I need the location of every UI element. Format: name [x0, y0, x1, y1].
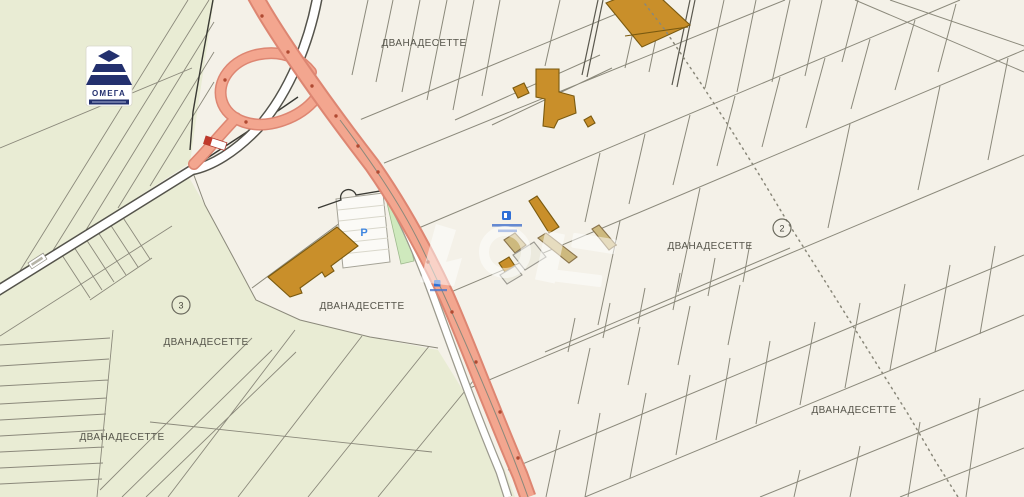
parcel-number: 3: [178, 301, 183, 311]
poi-glyph: [504, 213, 507, 218]
parcel-number: 2: [779, 224, 784, 234]
logo-title: ОМЕГА: [92, 89, 126, 98]
region-label: ДВАНАДЕСЕТТЕ: [667, 241, 752, 252]
parking-icon: P: [360, 227, 367, 239]
region-label: ДВАНАДЕСЕТТЕ: [79, 432, 164, 443]
poi-label-line: [430, 289, 447, 291]
map-viewport[interactable]: 3 2 P ДВАНАДЕСЕТТЕ ДВАНАДЕСЕТТЕ ДВАНАДЕС…: [0, 0, 1024, 497]
cadastral-map[interactable]: 3 2 P ДВАНАДЕСЕТТЕ ДВАНАДЕСЕТТЕ ДВАНАДЕС…: [0, 0, 1024, 497]
logo-bar-line: [92, 102, 126, 103]
region-label: ДВАНАДЕСЕТТЕ: [381, 38, 466, 49]
region-label: ДВАНАДЕСЕТТЕ: [163, 337, 248, 348]
region-label: ДВАНАДЕСЕТТЕ: [811, 405, 896, 416]
region-label: ДВАНАДЕСЕТТЕ: [319, 301, 404, 312]
company-logo[interactable]: ОМЕГА: [86, 46, 132, 106]
